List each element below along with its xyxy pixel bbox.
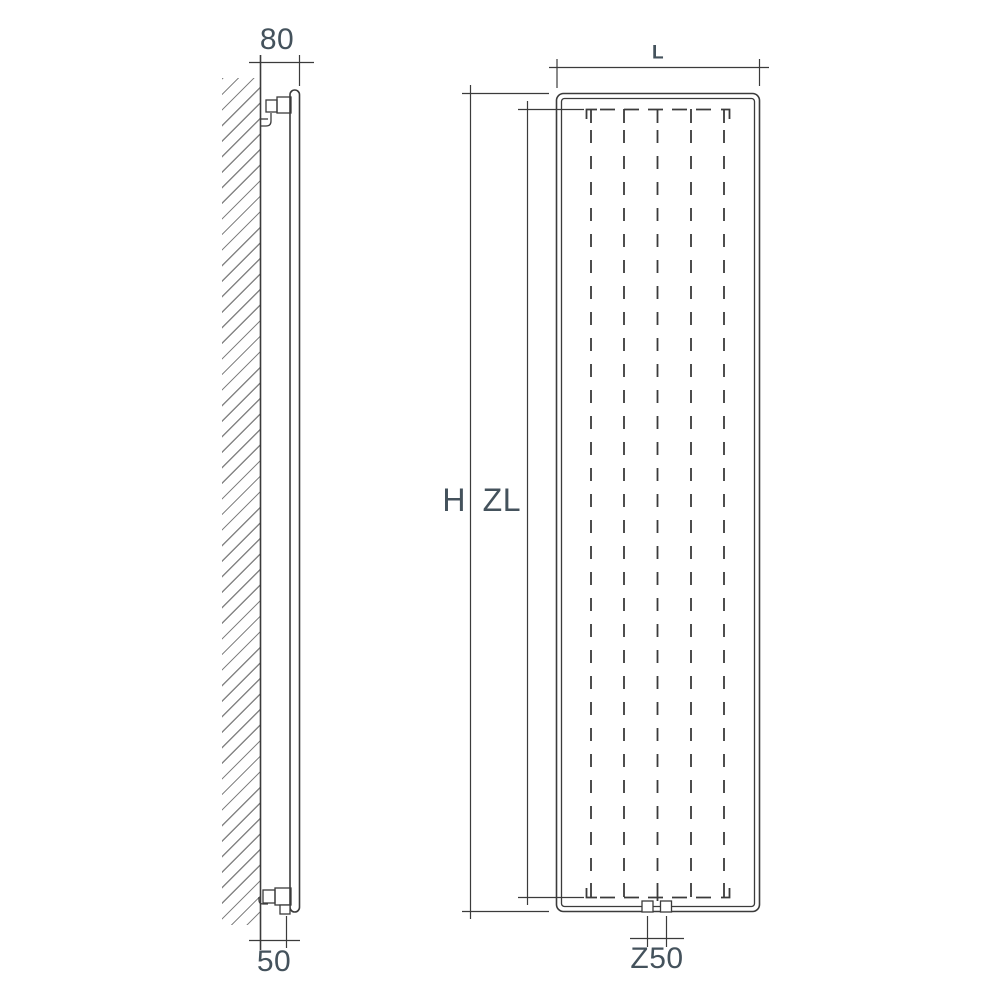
bracket-bottom <box>259 888 291 914</box>
technical-drawing-canvas: 80 50 L H ZL Z50 <box>0 0 1000 1000</box>
radiator-panel-side <box>290 90 300 912</box>
side-view <box>249 55 314 950</box>
connection-right <box>661 901 672 912</box>
dimension-80-label: 80 <box>260 25 294 55</box>
dimension-80 <box>249 55 314 86</box>
dimension-Z50-label: Z50 <box>630 944 683 974</box>
dimension-ZL-label: ZL <box>483 484 521 516</box>
connection-left <box>642 901 653 912</box>
dimension-50 <box>249 916 300 948</box>
bracket-top-body <box>277 97 291 113</box>
bottom-valve <box>280 905 290 914</box>
bracket-top <box>261 97 291 126</box>
bracket-bottom-body <box>275 888 291 905</box>
bracket-bottom-block <box>263 890 275 903</box>
dimension-50-label: 50 <box>257 947 291 977</box>
dimension-L-label: L <box>652 44 664 63</box>
dimension-H-label: H <box>442 484 466 516</box>
bracket-top-block <box>266 100 277 112</box>
